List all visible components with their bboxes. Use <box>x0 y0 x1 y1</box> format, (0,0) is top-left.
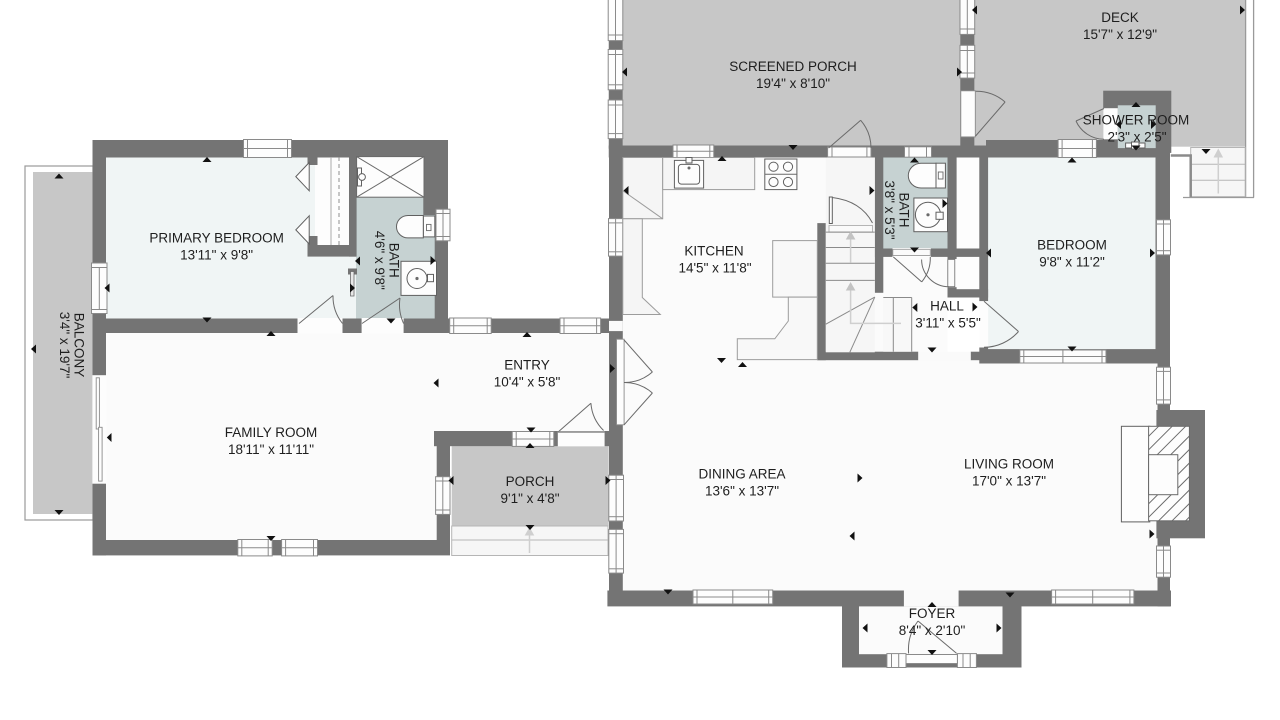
svg-text:8'4" x 2'10": 8'4" x 2'10" <box>899 623 966 638</box>
svg-text:13'6" x 13'7": 13'6" x 13'7" <box>705 484 779 499</box>
svg-text:3'8" x 5'3": 3'8" x 5'3" <box>882 180 897 239</box>
svg-text:PRIMARY BEDROOM: PRIMARY BEDROOM <box>149 231 284 246</box>
svg-text:DINING AREA: DINING AREA <box>698 467 785 482</box>
svg-text:FAMILY ROOM: FAMILY ROOM <box>225 425 318 440</box>
svg-text:19'4" x 8'10": 19'4" x 8'10" <box>756 76 830 91</box>
svg-text:LIVING ROOM: LIVING ROOM <box>964 457 1054 472</box>
svg-text:3'4" x 19'7": 3'4" x 19'7" <box>57 312 72 379</box>
svg-text:DECK: DECK <box>1101 10 1139 25</box>
svg-text:PORCH: PORCH <box>506 474 555 489</box>
svg-text:KITCHEN: KITCHEN <box>684 244 743 259</box>
svg-text:BATH: BATH <box>387 243 402 278</box>
svg-text:13'11" x 9'8": 13'11" x 9'8" <box>180 248 253 263</box>
svg-text:17'0" x 13'7": 17'0" x 13'7" <box>972 474 1046 489</box>
svg-text:HALL: HALL <box>930 299 964 314</box>
svg-text:3'11" x 5'5": 3'11" x 5'5" <box>915 316 981 331</box>
svg-text:18'11" x 11'11": 18'11" x 11'11" <box>228 442 314 457</box>
svg-text:ENTRY: ENTRY <box>504 358 550 373</box>
svg-text:2'3" x 2'5": 2'3" x 2'5" <box>1107 130 1166 145</box>
svg-text:BEDROOM: BEDROOM <box>1037 238 1107 253</box>
svg-text:14'5" x 11'8": 14'5" x 11'8" <box>678 261 751 276</box>
svg-text:FOYER: FOYER <box>909 606 956 621</box>
svg-text:15'7" x 12'9": 15'7" x 12'9" <box>1083 27 1157 42</box>
svg-text:10'4" x 5'8": 10'4" x 5'8" <box>494 375 561 390</box>
svg-text:SHOWER ROOM: SHOWER ROOM <box>1083 113 1190 128</box>
svg-text:SCREENED PORCH: SCREENED PORCH <box>729 59 857 74</box>
svg-text:9'1" x 4'8": 9'1" x 4'8" <box>500 491 559 506</box>
svg-text:9'8" x 11'2": 9'8" x 11'2" <box>1039 255 1105 270</box>
svg-text:BALCONY: BALCONY <box>72 313 87 378</box>
svg-text:4'6" x 9'8": 4'6" x 9'8" <box>372 231 387 290</box>
svg-text:BATH: BATH <box>897 192 912 227</box>
